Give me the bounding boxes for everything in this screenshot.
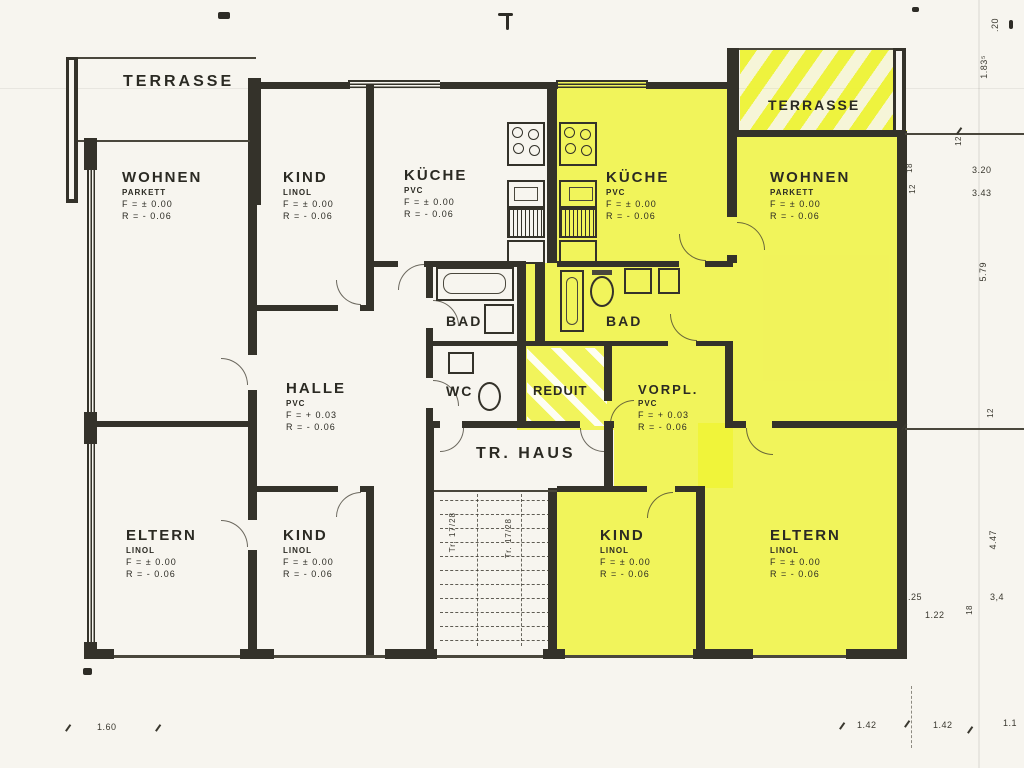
stair-note: Tr. 17/28	[448, 512, 457, 552]
window	[556, 80, 648, 88]
room-level-f: F = ± 0.00	[404, 198, 467, 207]
bathtub-inner	[443, 273, 506, 294]
wall-segment	[897, 131, 907, 657]
wall-segment	[86, 421, 250, 427]
dim-tick	[155, 724, 161, 731]
stair-tread	[440, 556, 550, 557]
stair-tread	[440, 640, 550, 641]
stove-burner	[580, 129, 591, 140]
sink-symbol	[507, 180, 545, 208]
wall-segment	[248, 550, 257, 655]
stove-burner	[581, 145, 592, 156]
room-level-f: F = ± 0.00	[770, 558, 841, 567]
sink-basin	[569, 187, 593, 201]
toilet-symbol	[590, 276, 614, 307]
room-label-bad-left: BAD	[446, 314, 482, 328]
stove-burner	[528, 129, 539, 140]
room-label-eltern-left: ELTERN LINOL F = ± 0.00 R = - 0.06	[126, 528, 197, 579]
dimension-text: 1.83⁵	[979, 55, 989, 79]
dimension-text: 12	[908, 184, 917, 194]
wall-segment	[426, 423, 434, 657]
dim-tick	[839, 722, 845, 729]
scan-artifact	[912, 7, 919, 12]
wall-segment	[725, 341, 733, 423]
wall-segment	[360, 305, 374, 311]
wall-segment	[366, 85, 374, 309]
toilet-symbol	[478, 382, 501, 411]
wall-segment	[426, 261, 433, 298]
room-floor-label: PARKETT	[770, 189, 850, 197]
dimension-text: 1.1	[1003, 718, 1017, 728]
room-label-terrasse-left: TERRASSE	[123, 74, 234, 90]
wall-segment	[248, 205, 257, 355]
stair-note: Tr. 17/28	[504, 518, 513, 558]
scan-artifact	[83, 668, 92, 675]
room-label-wc: WC	[446, 384, 473, 398]
door-swing-arc	[398, 264, 424, 290]
wall-core	[69, 60, 74, 199]
room-level-r: R = - 0.06	[126, 570, 197, 579]
door-swing-arc	[336, 492, 361, 517]
room-level-r: R = - 0.06	[600, 570, 651, 579]
terrace-edge-line	[739, 48, 895, 50]
room-name: HALLE	[286, 381, 346, 396]
wall-segment	[727, 48, 739, 136]
room-label-halle: HALLE PVC F = + 0.03 R = - 0.06	[286, 381, 346, 432]
scan-artifact	[1009, 20, 1013, 29]
wall-segment	[366, 488, 374, 655]
wall-segment	[610, 341, 668, 346]
sink-symbol	[559, 180, 597, 208]
stair-stringer	[477, 494, 478, 646]
dimension-line	[905, 428, 1024, 430]
terrace-edge-line	[78, 140, 250, 142]
dimension-text: 1.42	[857, 720, 877, 730]
room-floor-label: PVC	[606, 189, 669, 197]
wall-segment	[250, 305, 338, 311]
dim-tick	[65, 724, 71, 731]
wall-segment	[846, 649, 907, 659]
counter-symbol	[507, 240, 545, 264]
room-name: ELTERN	[770, 528, 841, 543]
room-level-r: R = - 0.06	[404, 210, 467, 219]
stove-burner	[513, 143, 524, 154]
stair-tread	[440, 500, 550, 501]
wall-segment	[433, 341, 523, 346]
room-label-terrasse-right: TERRASSE	[768, 98, 860, 112]
room-level-r: R = - 0.06	[638, 423, 698, 432]
room-name: BAD	[606, 314, 642, 328]
wall-segment	[250, 82, 350, 89]
room-name: WC	[446, 384, 473, 398]
wall-segment	[426, 421, 440, 428]
room-name: KÜCHE	[606, 170, 669, 185]
stove-burner	[565, 143, 576, 154]
dimension-line	[911, 686, 912, 748]
drainer-symbol	[559, 208, 597, 238]
wall-segment	[462, 421, 580, 428]
room-name: TERRASSE	[123, 74, 234, 90]
stair-tread	[440, 598, 550, 599]
window	[87, 170, 95, 412]
room-name: TERRASSE	[768, 98, 860, 112]
drainer-symbol	[507, 208, 545, 238]
kitchen-unit-right	[559, 122, 597, 264]
room-label-kind-bottom-left: KIND LINOL F = ± 0.00 R = - 0.06	[283, 528, 334, 579]
stair-tread	[440, 584, 550, 585]
room-name: ELTERN	[126, 528, 197, 543]
room-label-kueche-left: KÜCHE PVC F = ± 0.00 R = - 0.06	[404, 168, 467, 219]
wall-segment	[360, 486, 374, 492]
dimension-text: 3.20	[972, 165, 992, 175]
room-label-eltern-right: ELTERN LINOL F = ± 0.00 R = - 0.06	[770, 528, 841, 579]
stove-symbol	[559, 122, 597, 166]
room-floor-label: PVC	[286, 400, 346, 408]
wall-segment	[84, 412, 97, 444]
room-floor-label: PVC	[404, 187, 467, 195]
door-swing-arc	[221, 358, 248, 385]
toilet-tank	[592, 270, 612, 275]
floor-plan-scan: Tr. 17/28 Tr. 17/28 TERRASSE WOHNEN PARK…	[0, 0, 1024, 768]
room-level-r: R = - 0.06	[770, 212, 850, 221]
bathtub-inner	[566, 277, 578, 325]
room-level-f: F = ± 0.00	[126, 558, 197, 567]
wall-segment	[248, 390, 257, 423]
room-level-r: R = - 0.06	[283, 212, 334, 221]
room-name: REDUIT	[533, 384, 587, 397]
wall-core	[896, 51, 902, 132]
window	[348, 80, 440, 88]
bathtub-symbol	[560, 270, 584, 332]
wall-segment	[604, 341, 612, 401]
dimension-text: 5.79	[978, 262, 988, 282]
room-name: WOHNEN	[770, 170, 850, 185]
window	[87, 444, 95, 642]
scan-artifact	[218, 12, 230, 19]
wall-segment	[547, 82, 557, 263]
room-label-wohnen-right: WOHNEN PARKETT F = ± 0.00 R = - 0.06	[770, 170, 850, 221]
wall-segment	[725, 421, 746, 428]
dimension-text: 3.43	[972, 188, 992, 198]
room-label-reduit: REDUIT	[533, 384, 587, 397]
dimension-text: 12	[986, 408, 995, 418]
room-level-f: F = ± 0.00	[606, 200, 669, 209]
kitchen-unit-left	[507, 122, 545, 264]
washbasin-symbol	[624, 268, 652, 294]
stove-symbol	[507, 122, 545, 166]
stove-burner	[512, 127, 523, 138]
wall-segment	[727, 132, 737, 217]
room-floor-label: LINOL	[126, 547, 197, 555]
wall-segment	[248, 423, 257, 520]
dimension-line	[905, 133, 1024, 135]
dimension-text: 12	[954, 136, 963, 146]
room-floor-label: PARKETT	[122, 189, 202, 197]
door-swing-arc	[336, 280, 361, 305]
wall-segment	[535, 263, 545, 343]
washbasin-symbol	[484, 304, 514, 334]
room-level-f: F = ± 0.00	[770, 200, 850, 209]
dimension-text: 1.60	[97, 722, 117, 732]
wall-segment	[727, 255, 737, 263]
dimension-text: 18	[905, 163, 914, 173]
wall-segment	[522, 341, 610, 346]
wall-segment	[88, 655, 906, 658]
room-level-r: R = - 0.06	[283, 570, 334, 579]
room-floor-label: LINOL	[283, 189, 334, 197]
dimension-text: .25	[908, 592, 922, 602]
wall-segment	[557, 486, 647, 492]
room-floor-label: LINOL	[283, 547, 334, 555]
wall-segment	[240, 649, 274, 659]
room-name: BAD	[446, 314, 482, 328]
room-level-r: R = - 0.06	[286, 423, 346, 432]
room-name: KÜCHE	[404, 168, 467, 183]
wall-segment	[696, 488, 705, 655]
wall-segment	[84, 138, 97, 170]
room-label-kueche-right: KÜCHE PVC F = ± 0.00 R = - 0.06	[606, 170, 669, 221]
room-level-f: F = + 0.03	[638, 411, 698, 420]
room-level-f: F = ± 0.00	[600, 558, 651, 567]
wall-segment	[426, 328, 433, 378]
scan-artifact	[978, 0, 980, 768]
dimension-text: 1.42	[933, 720, 953, 730]
room-label-kind-bottom-right: KIND LINOL F = ± 0.00 R = - 0.06	[600, 528, 651, 579]
room-label-bad-right: BAD	[606, 314, 642, 328]
room-level-f: F = + 0.03	[286, 411, 346, 420]
room-level-r: R = - 0.06	[770, 570, 841, 579]
room-label-vorplatz: VORPL. PVC F = + 0.03 R = - 0.06	[638, 383, 698, 432]
terrace-edge-line	[78, 57, 256, 59]
stair-tread	[440, 626, 550, 627]
door-swing-arc	[440, 428, 464, 452]
wall-segment	[646, 82, 734, 89]
room-floor-label: PVC	[638, 400, 698, 408]
dimension-text: .20	[990, 18, 1000, 32]
room-label-kind-top-left: KIND LINOL F = ± 0.00 R = - 0.06	[283, 170, 334, 221]
room-label-wohnen-left: WOHNEN PARKETT F = ± 0.00 R = - 0.06	[122, 170, 202, 221]
room-level-f: F = ± 0.00	[283, 558, 334, 567]
wall-segment	[772, 421, 907, 428]
room-name: KIND	[283, 528, 334, 543]
wall-segment	[440, 82, 558, 89]
room-level-r: R = - 0.06	[606, 212, 669, 221]
dim-tick	[967, 726, 973, 733]
stove-burner	[564, 127, 575, 138]
stair-stringer	[521, 494, 522, 646]
room-level-f: F = ± 0.00	[122, 200, 202, 209]
room-label-treppenhaus: TR. HAUS	[476, 446, 576, 462]
wall-segment	[84, 649, 114, 659]
wall-segment	[733, 130, 905, 137]
stair-tread	[440, 570, 550, 571]
dimension-text: 4.47	[988, 530, 998, 550]
room-floor-label: LINOL	[770, 547, 841, 555]
bathtub-symbol	[436, 267, 514, 301]
room-name: VORPL.	[638, 383, 698, 396]
cistern-symbol	[448, 352, 474, 374]
wall-segment	[372, 261, 398, 267]
scan-artifact	[506, 13, 509, 30]
door-swing-arc	[221, 520, 248, 547]
dimension-text: 18	[965, 605, 974, 615]
highlight-terrasse-hatch	[740, 50, 893, 132]
dimension-text: 3,4	[990, 592, 1004, 602]
stove-burner	[529, 145, 540, 156]
wall-segment	[604, 423, 613, 490]
room-level-r: R = - 0.06	[122, 212, 202, 221]
dim-tick	[904, 720, 910, 727]
dimension-text: 1.22	[925, 610, 945, 620]
room-level-f: F = ± 0.00	[283, 200, 334, 209]
counter-symbol	[559, 240, 597, 264]
room-floor-label: LINOL	[600, 547, 651, 555]
room-name: KIND	[600, 528, 651, 543]
room-name: KIND	[283, 170, 334, 185]
washbasin-symbol	[658, 268, 680, 294]
sink-basin	[514, 187, 538, 201]
room-name: WOHNEN	[122, 170, 202, 185]
door-swing-arc	[580, 428, 604, 452]
room-name: TR. HAUS	[476, 446, 576, 462]
wall-segment	[250, 486, 338, 492]
stair-tread	[440, 612, 550, 613]
